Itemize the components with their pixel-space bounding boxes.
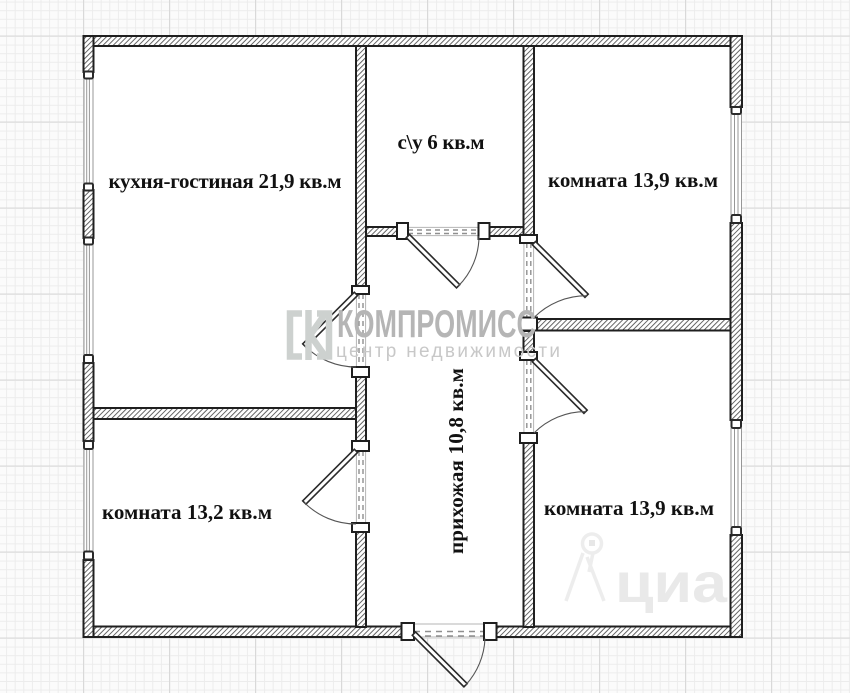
svg-text:комната 13,9 кв.м: комната 13,9 кв.м [548, 168, 718, 192]
svg-text:КОМПРОМИСС: КОМПРОМИСС [337, 303, 536, 346]
svg-text:кухня-гостиная 21,9 кв.м: кухня-гостиная 21,9 кв.м [109, 169, 342, 193]
svg-text:циа: циа [615, 551, 728, 614]
svg-text:с\у 6 кв.м: с\у 6 кв.м [398, 130, 485, 154]
svg-text:прихожая 10,8 кв.м: прихожая 10,8 кв.м [444, 368, 468, 554]
svg-text:центр недвижимости: центр недвижимости [336, 341, 560, 362]
svg-text:комната 13,9 кв.м: комната 13,9 кв.м [544, 496, 714, 520]
svg-text:комната 13,2 кв.м: комната 13,2 кв.м [102, 500, 272, 524]
